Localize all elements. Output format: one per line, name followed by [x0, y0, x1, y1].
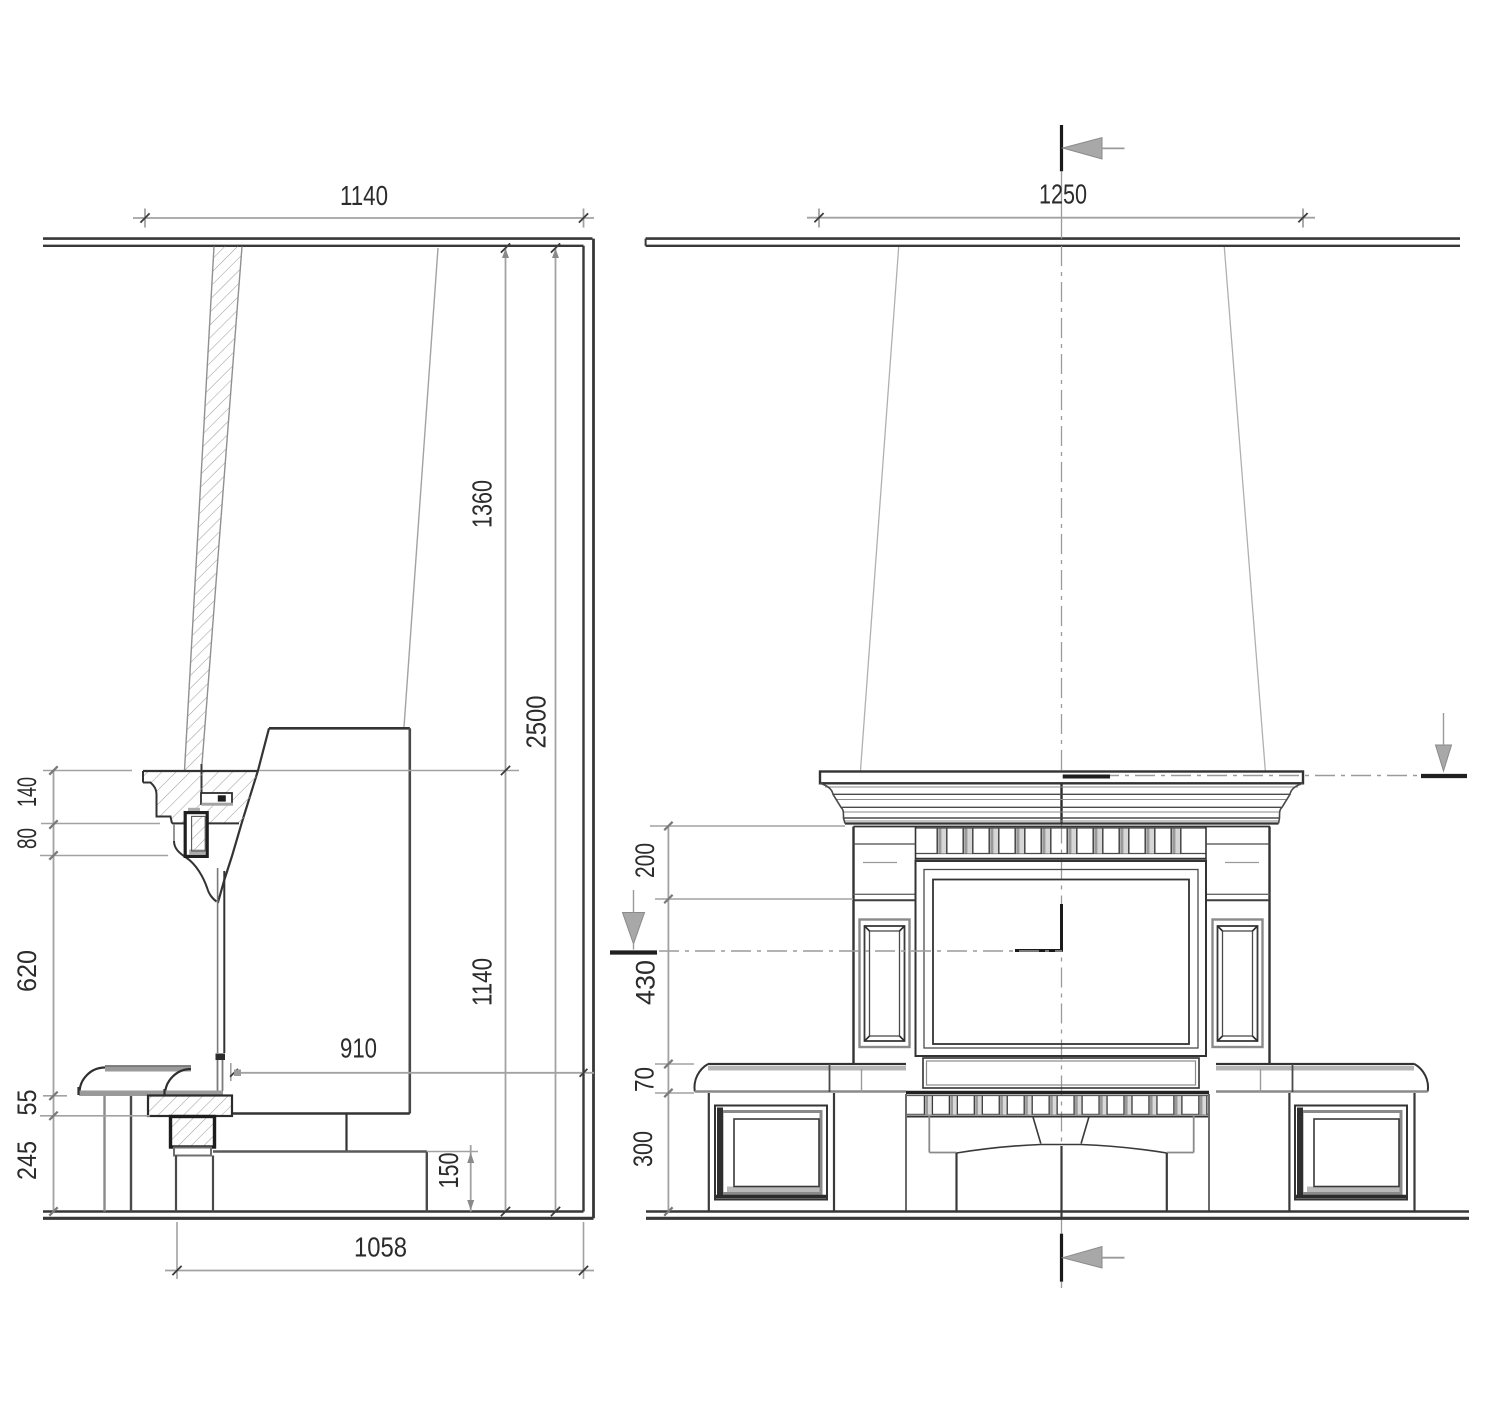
svg-text:80: 80 — [12, 828, 42, 849]
svg-text:140: 140 — [12, 777, 42, 807]
svg-text:55: 55 — [12, 1090, 42, 1116]
svg-text:910: 910 — [340, 1032, 377, 1063]
svg-text:300: 300 — [628, 1131, 658, 1167]
svg-text:620: 620 — [12, 950, 42, 992]
svg-text:1058: 1058 — [354, 1231, 407, 1262]
svg-text:200: 200 — [630, 843, 660, 878]
svg-text:1140: 1140 — [467, 958, 498, 1006]
svg-text:245: 245 — [12, 1141, 42, 1180]
svg-text:150: 150 — [433, 1153, 464, 1189]
svg-text:1140: 1140 — [340, 180, 388, 211]
svg-text:1250: 1250 — [1039, 178, 1087, 209]
svg-text:1360: 1360 — [467, 480, 498, 528]
svg-text:70: 70 — [630, 1067, 660, 1092]
svg-text:2500: 2500 — [521, 696, 552, 749]
svg-text:430: 430 — [631, 960, 661, 1005]
